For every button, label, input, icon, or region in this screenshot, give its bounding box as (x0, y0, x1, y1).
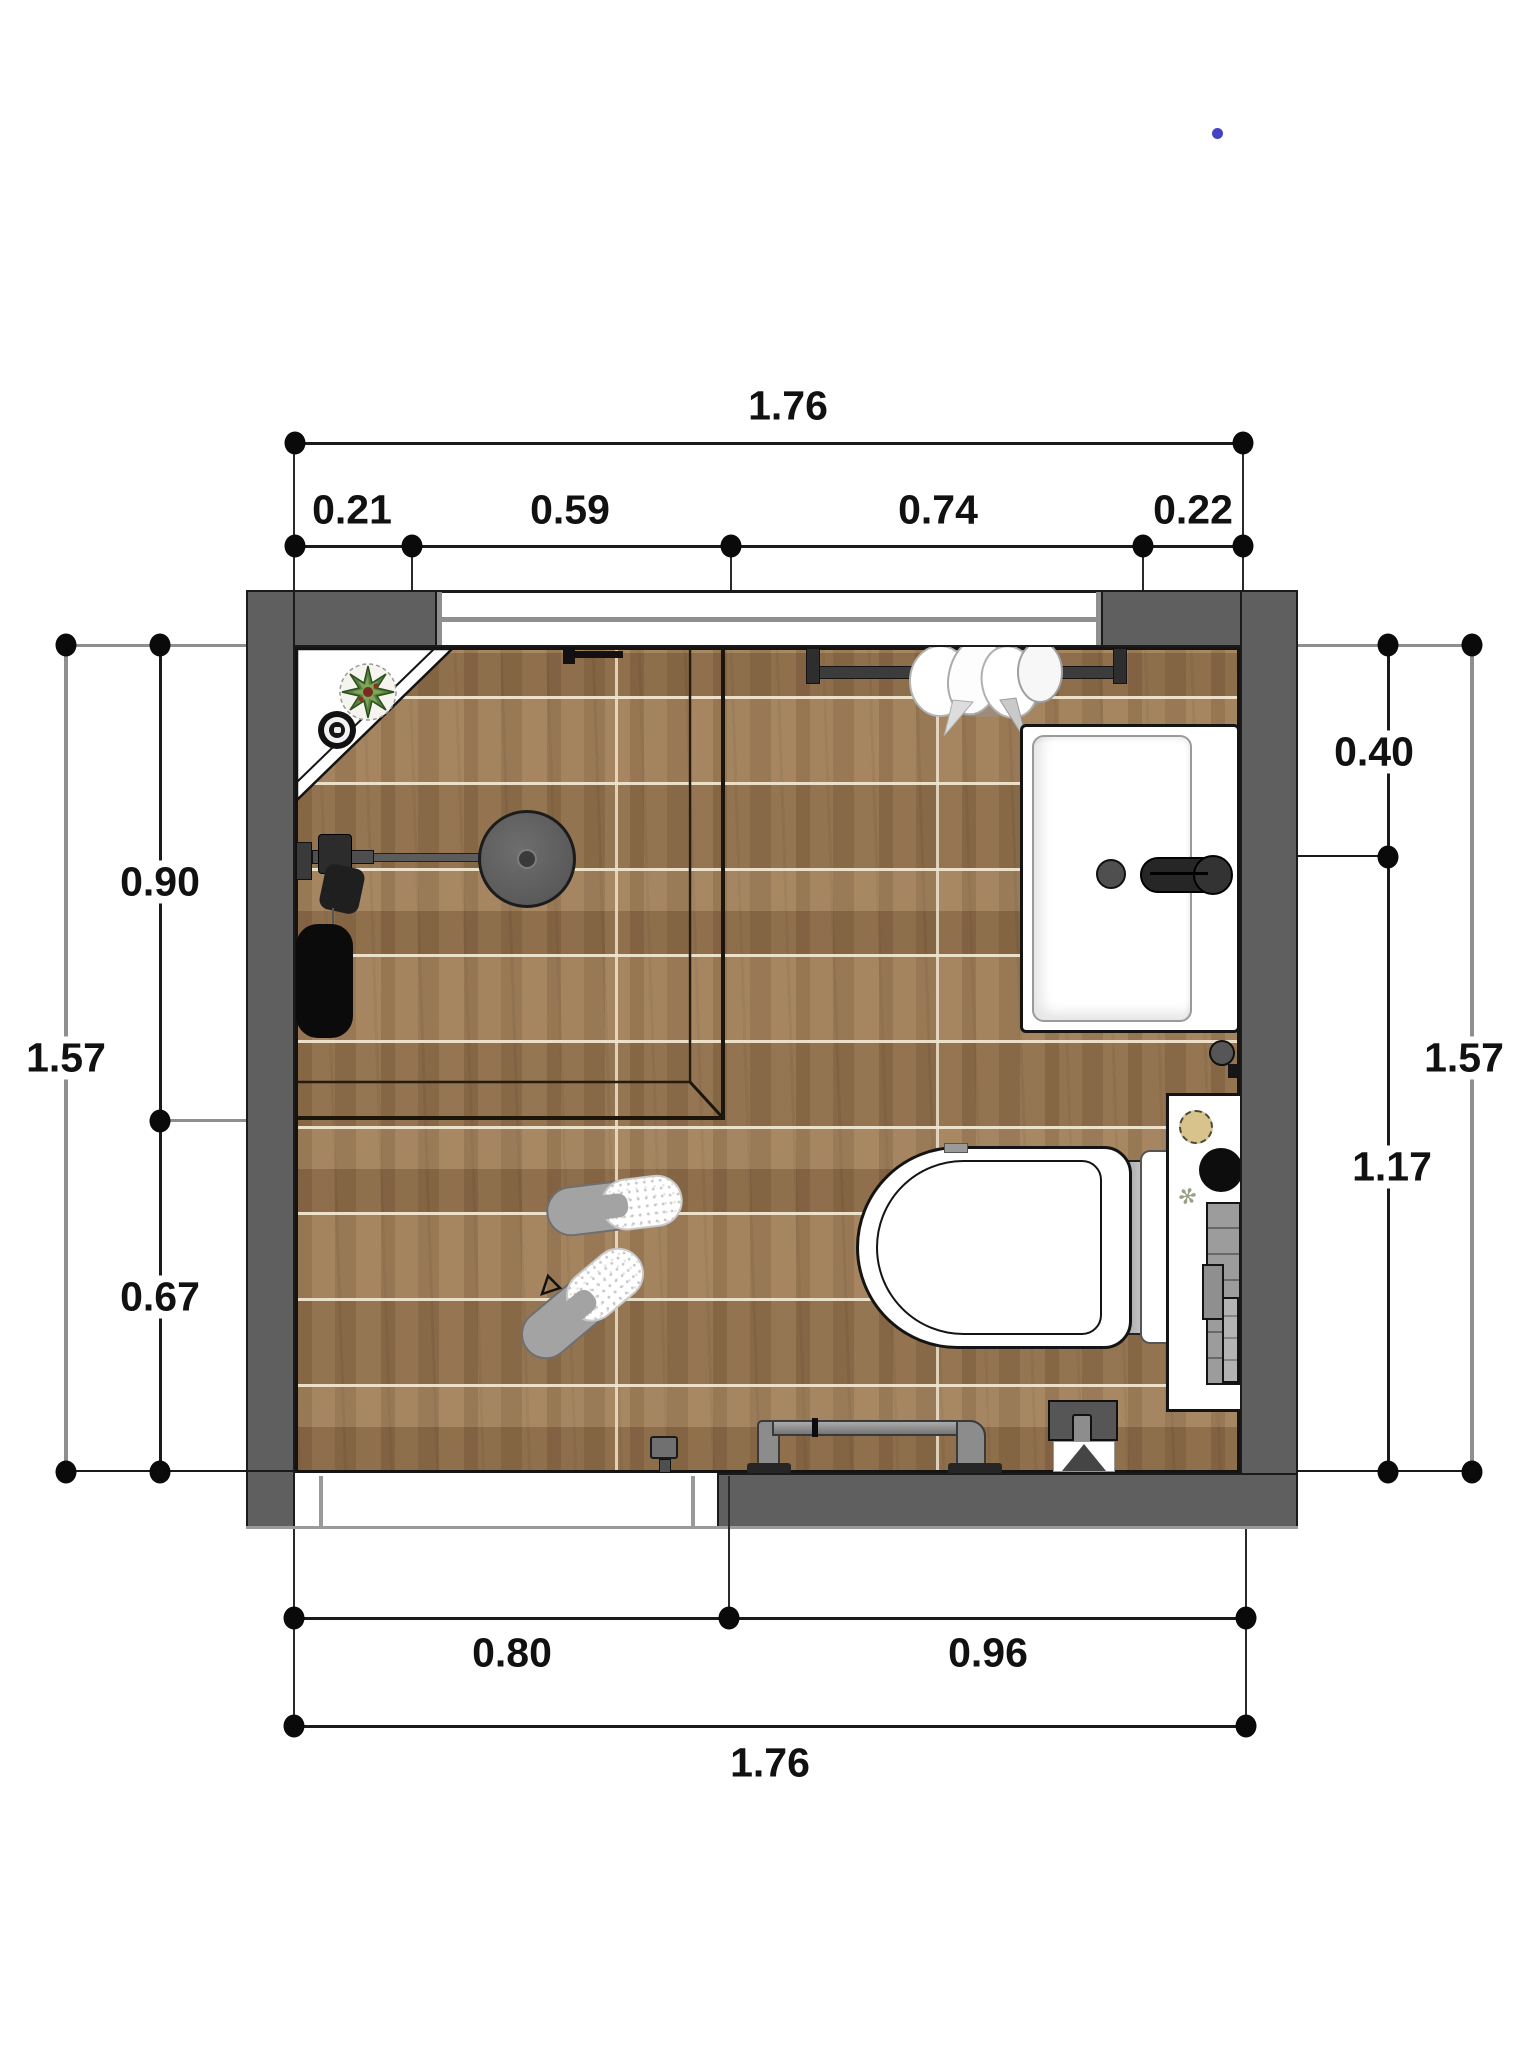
dim-dot (1462, 634, 1483, 657)
toilet-seat-hinge (944, 1143, 968, 1153)
dim-dot (150, 1461, 171, 1484)
extension-line (1242, 443, 1244, 590)
door-threshold-line (246, 1526, 1298, 1529)
dim-label-left-total: 1.57 (20, 1036, 112, 1079)
toilet-seat (876, 1160, 1102, 1335)
extension-line (160, 1119, 246, 1122)
dim-line-left-segments (159, 645, 162, 1472)
dim-label-bottom-seg-2: 0.96 (942, 1631, 1034, 1674)
dim-label-left-seg-1: 0.90 (114, 860, 206, 903)
dim-label-bottom-seg-1: 0.80 (466, 1631, 558, 1674)
wall-left (246, 590, 295, 1528)
dim-dot (719, 1607, 740, 1630)
dim-dot (1233, 535, 1254, 558)
round-black-item (1199, 1148, 1243, 1192)
dim-line-top-total (294, 442, 1244, 445)
wall-hook-knob (1209, 1040, 1235, 1066)
dim-label-right-seg-2: 1.17 (1346, 1145, 1438, 1188)
wall-hook-mount (1228, 1064, 1240, 1078)
dim-label-left-seg-2: 0.67 (114, 1275, 206, 1318)
dim-dot (1236, 1607, 1257, 1630)
bathroom-floor-plan: ✻ (0, 0, 1536, 2048)
dim-label-top-seg-4: 0.22 (1147, 488, 1239, 531)
dim-dot (150, 634, 171, 657)
dim-dot (1236, 1715, 1257, 1738)
dim-dot (402, 535, 423, 558)
extension-line (728, 1476, 730, 1618)
dim-dot (150, 1110, 171, 1133)
jar-item (1179, 1110, 1213, 1144)
dim-dot (1133, 535, 1154, 558)
dim-dot (1378, 1461, 1399, 1484)
dim-line-top-segments (294, 545, 1244, 548)
door-jamb (319, 1476, 323, 1526)
dim-dot (284, 1607, 305, 1630)
dim-label-top-seg-1: 0.21 (306, 488, 398, 531)
dim-dot (1378, 846, 1399, 869)
dim-dot (1378, 634, 1399, 657)
dim-dot (56, 634, 77, 657)
dim-dot (1233, 432, 1254, 455)
dim-label-top-total: 1.76 (742, 384, 834, 427)
extension-line (66, 1470, 295, 1472)
dim-line-bottom-segments (294, 1617, 1246, 1620)
towel-rail-pipe (772, 1420, 972, 1436)
blue-marker-dot (1212, 128, 1223, 139)
door-stop (650, 1436, 678, 1459)
dim-dot (285, 535, 306, 558)
extension-line (293, 443, 295, 590)
door-stop-base (659, 1459, 671, 1473)
toilet-brush-handle (1072, 1414, 1092, 1444)
extension-line (1298, 855, 1390, 857)
window-glass-line (437, 617, 1105, 622)
dim-dot (285, 432, 306, 455)
dim-line-bottom-total (294, 1725, 1246, 1728)
dim-dot (56, 1461, 77, 1484)
wall-bottom (717, 1473, 1298, 1528)
door-jamb (691, 1476, 695, 1526)
faucet-base (1193, 855, 1233, 895)
dim-dot (284, 1715, 305, 1738)
dim-dot (721, 535, 742, 558)
small-triangle-mark (538, 1272, 568, 1302)
window-frame-left (437, 592, 442, 645)
cabinet-box (1202, 1264, 1224, 1320)
wall-right (1240, 590, 1298, 1528)
dim-label-right-total: 1.57 (1418, 1036, 1510, 1079)
cabinet-tray-small (1222, 1297, 1239, 1383)
faucet-detail-line (1150, 872, 1208, 875)
dim-label-bottom-total: 1.76 (724, 1741, 816, 1784)
faucet-handle (1096, 859, 1126, 889)
dim-dot (1462, 1461, 1483, 1484)
rail-joint (812, 1418, 818, 1437)
dim-label-right-seg-1: 0.40 (1328, 730, 1420, 773)
dim-label-top-seg-3: 0.74 (892, 488, 984, 531)
dim-label-top-seg-2: 0.59 (524, 488, 616, 531)
